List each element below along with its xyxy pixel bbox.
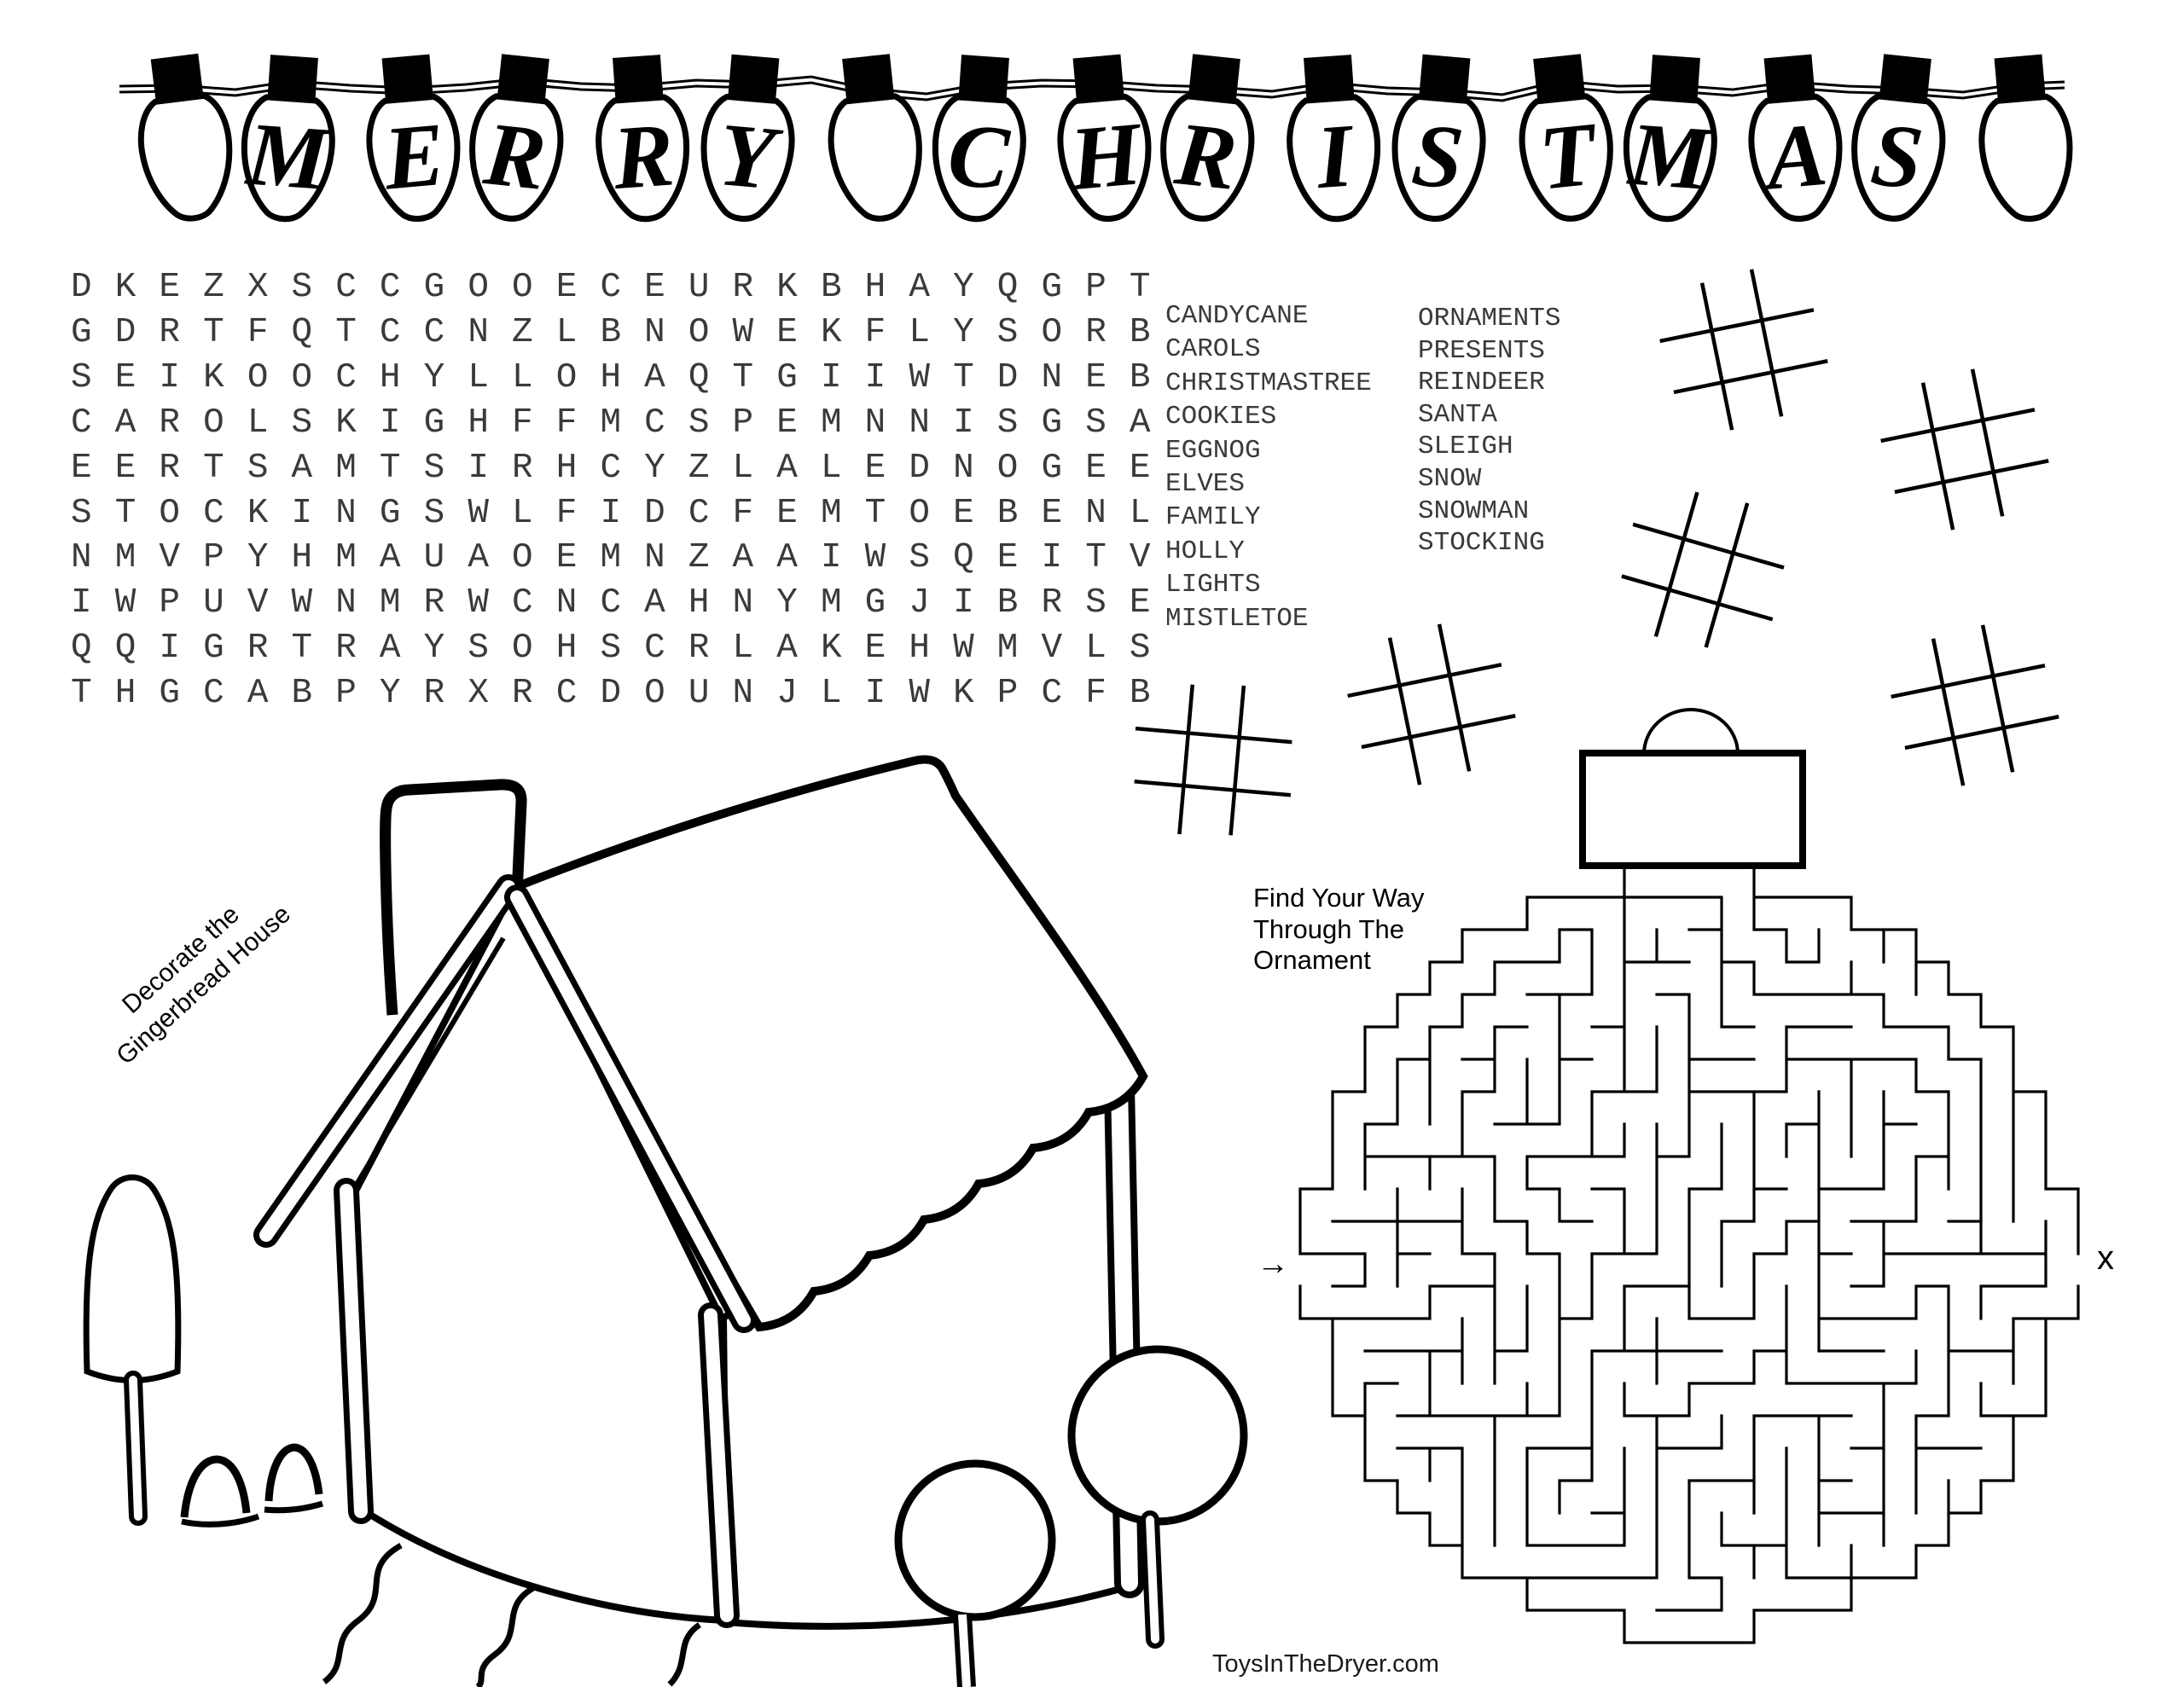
svg-text:CAROLS: CAROLS bbox=[1165, 334, 1261, 364]
svg-text:S: S bbox=[1409, 104, 1467, 208]
svg-text:CANDYCANE: CANDYCANE bbox=[1165, 301, 1308, 331]
svg-text:Through The: Through The bbox=[1253, 914, 1404, 944]
svg-text:QQIGRTRAYSOHSCRLAKEHWMVLS: QQIGRTRAYSOHSCRLAKEHWMVLS bbox=[71, 629, 1174, 668]
svg-text:M: M bbox=[242, 103, 334, 209]
svg-text:DKEZXSCCGOOECEURKBHAYQGPT: DKEZXSCCGOOECEURKBHAYQGPT bbox=[71, 268, 1174, 307]
svg-text:M: M bbox=[1624, 103, 1716, 209]
svg-text:x: x bbox=[2097, 1239, 2114, 1277]
svg-text:ORNAMENTS: ORNAMENTS bbox=[1418, 304, 1560, 333]
svg-text:SLEIGH: SLEIGH bbox=[1418, 432, 1513, 461]
svg-text:EGGNOG: EGGNOG bbox=[1165, 436, 1261, 466]
svg-text:NMVPYHMAUAOEMNZAAIWSQEITV: NMVPYHMAUAOEMNZAAIWSQEITV bbox=[71, 538, 1174, 577]
svg-text:COOKIES: COOKIES bbox=[1165, 402, 1276, 432]
svg-text:SANTA: SANTA bbox=[1418, 400, 1497, 430]
svg-text:ELVES: ELVES bbox=[1165, 469, 1245, 499]
svg-text:FAMILY: FAMILY bbox=[1165, 502, 1261, 532]
svg-text:MISTLETOE: MISTLETOE bbox=[1165, 604, 1308, 634]
svg-text:C: C bbox=[944, 104, 1013, 208]
svg-text:→: → bbox=[1257, 1246, 1289, 1282]
svg-text:SNOW: SNOW bbox=[1418, 464, 1482, 494]
svg-text:EERTSAMTSIRHCYZLALEDNOGEE: EERTSAMTSIRHCYZLALEDNOGEE bbox=[71, 449, 1174, 488]
svg-text:LIGHTS: LIGHTS bbox=[1165, 570, 1261, 600]
svg-text:E: E bbox=[379, 104, 449, 209]
svg-text:THGCABPYRXRCDOUNJLIWKPCFB: THGCABPYRXRCDOUNJLIWKPCFB bbox=[71, 674, 1174, 713]
svg-text:R: R bbox=[609, 104, 677, 208]
svg-text:GDRTFQTCCNZLBNOWEKFLYSORB: GDRTFQTCCNZLBNOWEKFLYSORB bbox=[71, 313, 1174, 352]
svg-text:CHRISTMASTREE: CHRISTMASTREE bbox=[1165, 368, 1372, 398]
svg-text:CAROLSKIGHFFMCSPEMNNISGSA: CAROLSKIGHFFMCSPEMNNISGSA bbox=[71, 403, 1174, 443]
svg-text:R: R bbox=[479, 103, 550, 209]
svg-text:IWPUVWNMRWCNCAHNYMGJIBRSE: IWPUVWNMRWCNCAHNYMGJIBRSE bbox=[71, 583, 1174, 623]
svg-text:PRESENTS: PRESENTS bbox=[1418, 336, 1545, 366]
svg-text:STOCKING: STOCKING bbox=[1418, 528, 1545, 558]
svg-text:REINDEER: REINDEER bbox=[1418, 368, 1545, 397]
svg-text:R: R bbox=[1170, 103, 1241, 209]
svg-text:HOLLY: HOLLY bbox=[1165, 536, 1245, 566]
svg-text:Ornament: Ornament bbox=[1253, 945, 1371, 975]
svg-text:STOCKINGSWLFIDCFEMTOEBENL: STOCKINGSWLFIDCFEMTOEBENL bbox=[71, 494, 1174, 533]
svg-text:Find Your Way: Find Your Way bbox=[1253, 883, 1425, 913]
svg-text:SEIKOOCHYLLOHAQTGIIWTDNEB: SEIKOOCHYLLOHAQTGIIWTDNEB bbox=[71, 358, 1174, 397]
svg-text:SNOWMAN: SNOWMAN bbox=[1418, 496, 1529, 526]
svg-text:S: S bbox=[1867, 104, 1927, 209]
svg-text:H: H bbox=[1066, 103, 1148, 209]
svg-text:ToysInTheDryer.com: ToysInTheDryer.com bbox=[1212, 1650, 1439, 1678]
